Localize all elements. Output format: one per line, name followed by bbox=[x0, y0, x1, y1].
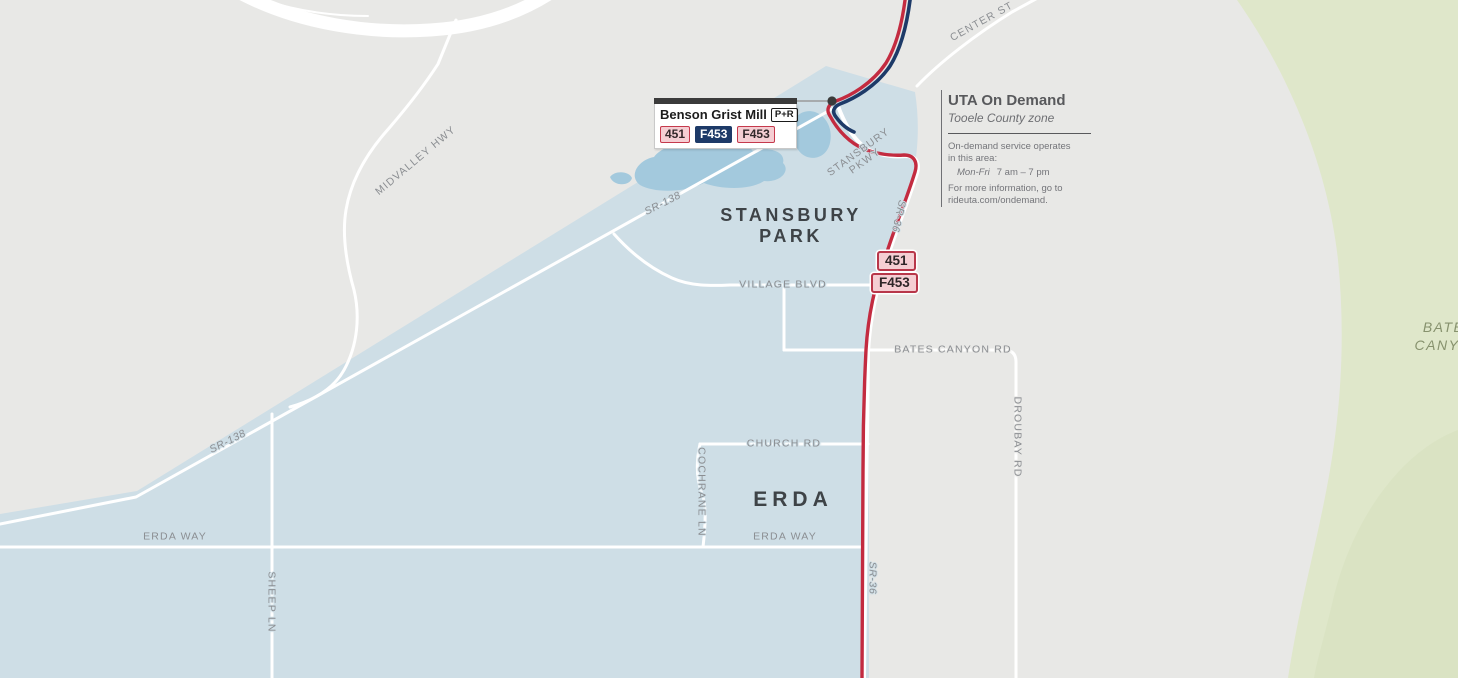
route-marker-f453: F453 bbox=[871, 273, 918, 293]
transit-map[interactable]: STANSBURY PARK ERDA BATES CANYON CENTER … bbox=[0, 0, 1458, 678]
panel-divider bbox=[948, 133, 1091, 134]
place-label-erda: ERDA bbox=[753, 488, 833, 512]
panel-body-line: in this area: bbox=[948, 153, 1104, 165]
road-label-cochrane-ln: COCHRANE LN bbox=[696, 447, 707, 537]
stop-route-badge-451: 451 bbox=[660, 126, 690, 143]
road-label-droubay-rd: DROUBAY RD bbox=[1012, 396, 1023, 477]
road-center-st bbox=[917, 0, 1045, 86]
panel-footer-line: For more information, go to bbox=[948, 183, 1104, 195]
panel-schedule-days: Mon-Fri bbox=[957, 167, 990, 178]
panel-footer-link: rideuta.com/ondemand. bbox=[948, 195, 1104, 207]
lake-shape bbox=[610, 172, 632, 184]
stop-callout-benson-grist-mill: Benson Grist Mill P+R 451 F453 F453 bbox=[654, 98, 797, 149]
road-label-erda-way-west: ERDA WAY bbox=[143, 532, 207, 543]
place-label-bates-canyon: BATES CANYON bbox=[1415, 318, 1458, 354]
road-label-village-blvd: VILLAGE BLVD bbox=[739, 280, 827, 291]
stop-name: Benson Grist Mill bbox=[660, 107, 767, 122]
route-marker-451: 451 bbox=[877, 251, 916, 271]
road-label-bates-canyon-rd: BATES CANYON RD bbox=[894, 345, 1012, 356]
park-and-ride-badge: P+R bbox=[771, 108, 798, 122]
road-label-sr-36-south: SR-36 bbox=[867, 562, 878, 595]
panel-schedule-hours: 7 am – 7 pm bbox=[997, 167, 1050, 178]
road-label-sheep-ln: SHEEP LN bbox=[266, 571, 277, 632]
panel-body-line: On-demand service operates bbox=[948, 141, 1104, 153]
road-top-arc bbox=[242, 0, 552, 31]
stop-route-badge-f453-served: F453 bbox=[695, 126, 732, 143]
stop-dot bbox=[827, 96, 836, 105]
road-label-church-rd: CHURCH RD bbox=[747, 439, 821, 450]
uta-on-demand-panel: UTA On Demand Tooele County zone On-dema… bbox=[941, 90, 1104, 207]
road-label-erda-way-east: ERDA WAY bbox=[753, 532, 817, 543]
place-label-stansbury-park: STANSBURY PARK bbox=[720, 205, 862, 247]
panel-title: UTA On Demand bbox=[948, 92, 1104, 109]
panel-subtitle: Tooele County zone bbox=[948, 111, 1104, 125]
stop-route-badge-f453: F453 bbox=[737, 126, 774, 143]
